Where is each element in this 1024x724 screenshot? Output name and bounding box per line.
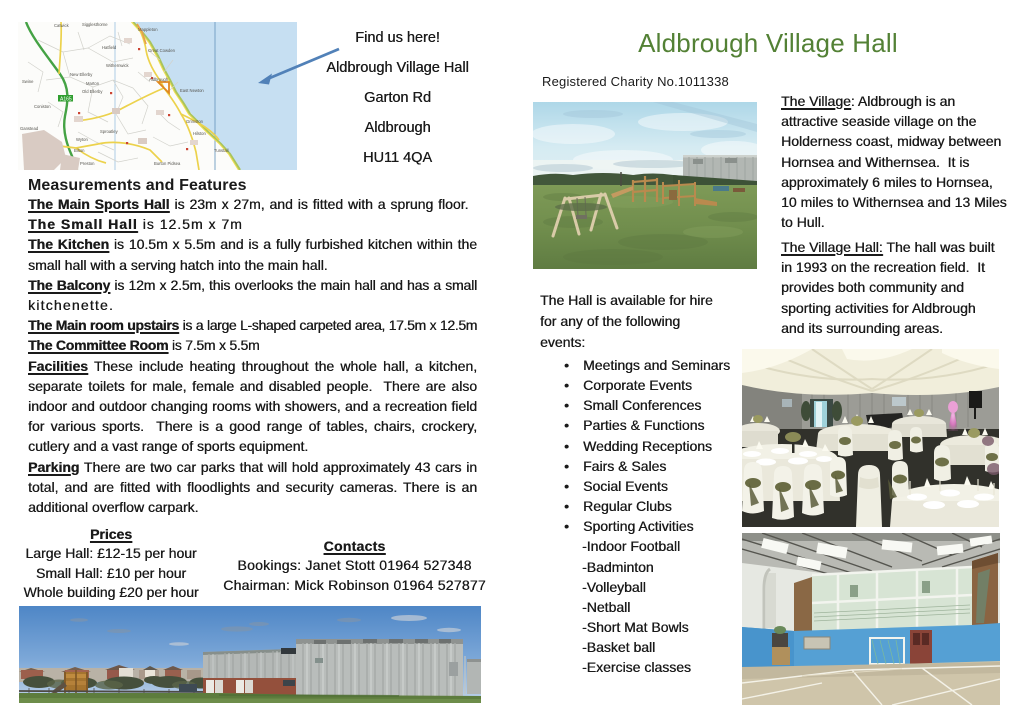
svg-text:A165: A165: [60, 97, 72, 103]
svg-text:Preston: Preston: [80, 161, 95, 166]
svg-text:Swine: Swine: [22, 79, 34, 84]
svg-text:Sigglesthorne: Sigglesthorne: [82, 22, 108, 27]
svg-text:Coniston: Coniston: [34, 104, 51, 109]
svg-text:East Newton: East Newton: [180, 88, 204, 93]
svg-text:Hatfield: Hatfield: [102, 45, 117, 50]
svg-text:New Ellerby: New Ellerby: [70, 72, 93, 77]
svg-text:Sproatley: Sproatley: [100, 129, 119, 134]
svg-text:Great Cowden: Great Cowden: [148, 48, 176, 53]
svg-text:Grimston: Grimston: [186, 119, 204, 124]
svg-text:Burton Pidsea: Burton Pidsea: [154, 161, 181, 166]
svg-text:Tunstall: Tunstall: [214, 148, 229, 153]
svg-text:Aldbrough: Aldbrough: [149, 77, 169, 82]
svg-text:Ganstead: Ganstead: [20, 126, 39, 131]
svg-text:Mappleton: Mappleton: [138, 27, 158, 32]
svg-text:Hilston: Hilston: [193, 131, 206, 136]
svg-text:Wyton: Wyton: [76, 137, 89, 142]
svg-text:Bilton: Bilton: [74, 148, 85, 153]
svg-text:Old Ellerby: Old Ellerby: [82, 89, 103, 94]
svg-text:Catwick: Catwick: [54, 23, 70, 28]
svg-text:Withernwick: Withernwick: [106, 63, 129, 68]
svg-text:Marton: Marton: [86, 81, 100, 86]
